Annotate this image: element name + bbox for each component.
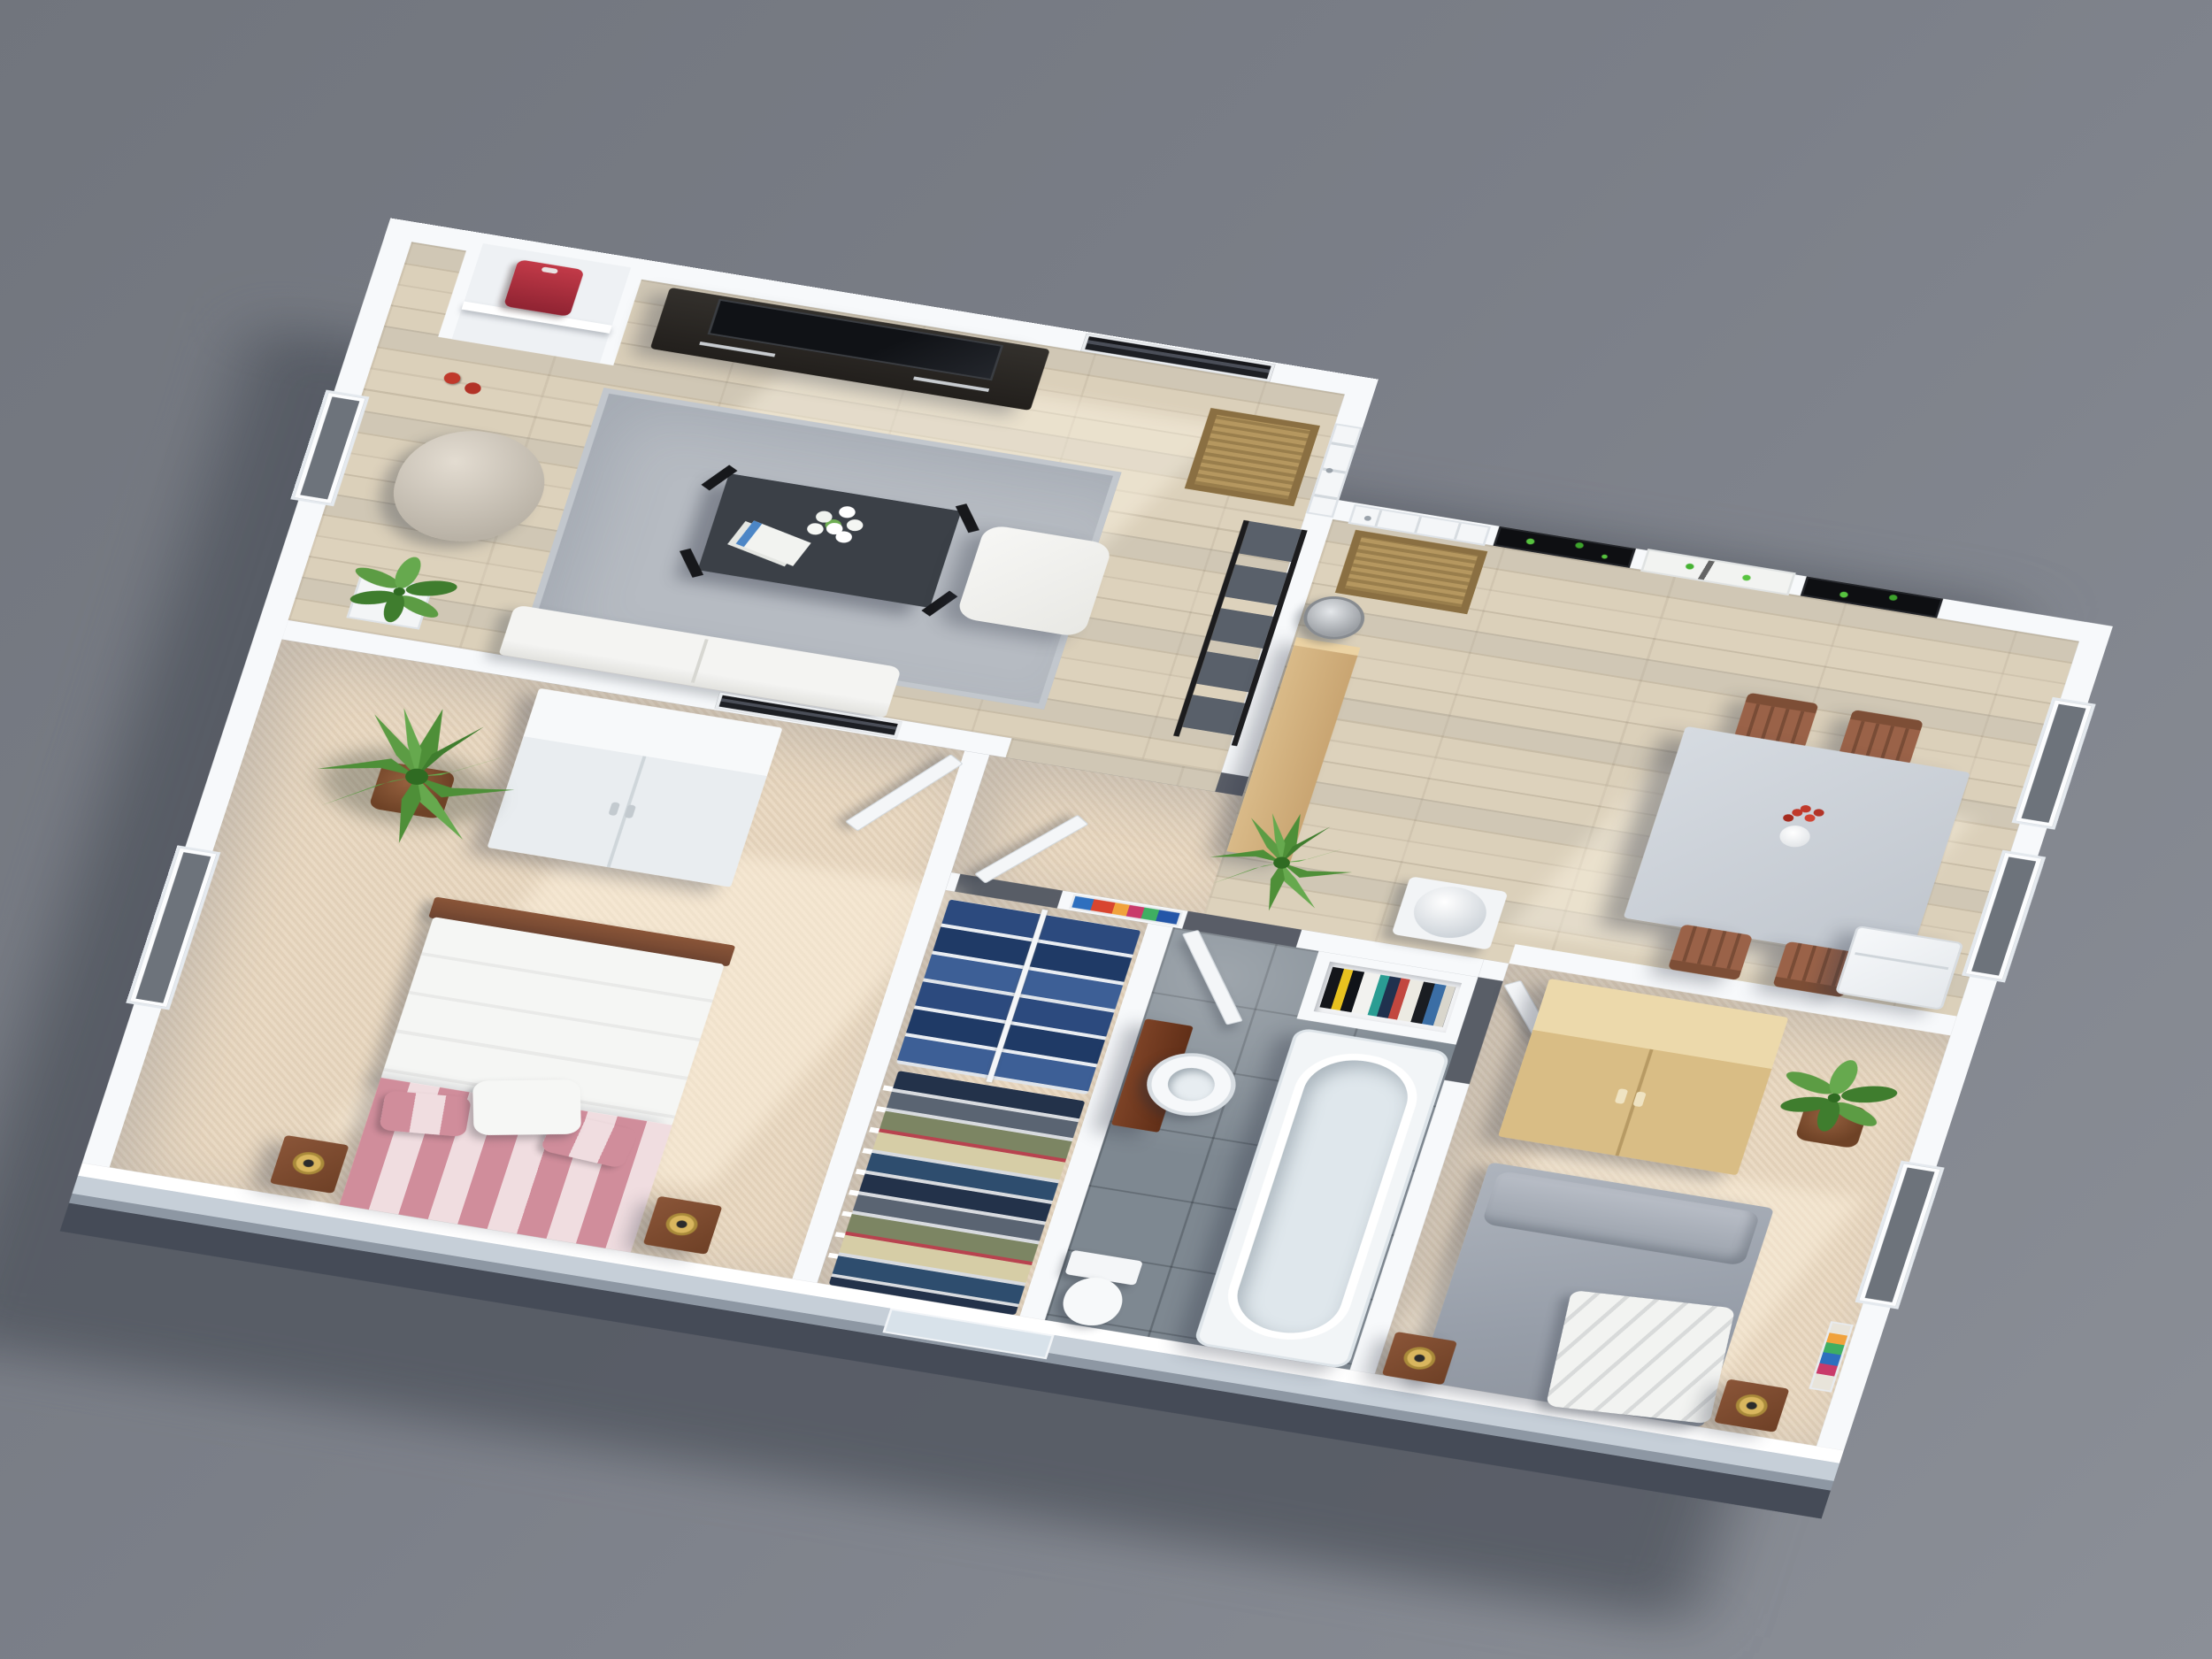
sofa-cushion-seam xyxy=(691,639,709,683)
sink-basin xyxy=(1164,1064,1219,1104)
lily-bouquet xyxy=(825,522,844,536)
clothes-rail xyxy=(986,910,1048,1083)
bed2-white-throw xyxy=(1546,1290,1735,1425)
book-niche xyxy=(1314,961,1463,1033)
door-handle xyxy=(1325,467,1333,473)
red-flowers xyxy=(1791,808,1803,817)
bed1-white-cushion xyxy=(472,1079,581,1135)
bed1-striped-pillow-left xyxy=(379,1090,472,1137)
fridge-door-seam xyxy=(1855,952,1948,970)
books-towels xyxy=(1319,967,1455,1027)
wardrobe-handles xyxy=(1615,1088,1629,1104)
tv-stand-handle-right xyxy=(913,376,989,391)
table-vase xyxy=(1777,824,1813,849)
tv-stand-handle-left xyxy=(699,342,775,357)
front-door-handle xyxy=(1363,515,1371,521)
magazines xyxy=(736,520,811,565)
wardrobe-handles xyxy=(608,802,620,816)
apartment-3d-render xyxy=(0,0,2212,1659)
